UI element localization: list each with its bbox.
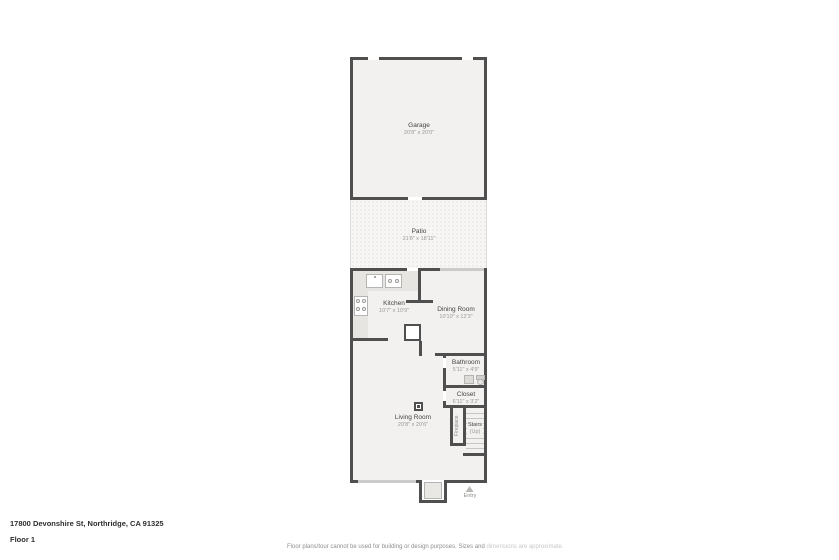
wall-alcove-bottom [419,500,447,503]
disclaimer-main: Floor plans/tour cannot be used for buil… [287,544,486,550]
vanity-icon [464,375,474,384]
closet-name: Closet [453,391,480,399]
address-text: 17800 Devonshire St, Northridge, CA 9132… [10,519,164,528]
bathroom-label: Bathroom 5'11" x 4'9" [452,359,480,374]
garage-label: Garage 20'8" x 20'0" [404,122,434,137]
entry-marker: Entry [464,486,477,499]
patio-dims: 21'8" x 18'11" [403,236,436,243]
wall-fireplace-bottom [450,443,466,446]
closet-label: Closet 6'11" x 3'2" [453,391,480,406]
fixture-marker-icon [414,402,423,411]
wall-closet-top [443,385,487,388]
fireplace-label: Fireplace [454,410,462,442]
garage-name: Garage [404,122,434,130]
stairs-direction: (Up) [468,429,482,436]
cooktop-icon [385,274,402,288]
sink-icon [366,274,383,288]
stove-icon [354,296,368,316]
window-segment [358,480,416,483]
kitchen-name: Kitchen [379,300,409,308]
floorplan-canvas: Garage 20'8" x 20'0" Patio 21'8" x 18'11… [0,0,839,560]
disclaimer-text: Floor plans/tour cannot be used for buil… [287,544,564,550]
living-dims: 20'8" x 20'6" [395,422,431,429]
wall-pantry-down [419,341,422,356]
bathroom-door-opening [443,358,446,368]
kitchen-dims: 10'7" x 10'9" [379,308,409,315]
patio-name: Patio [403,228,436,236]
wall-kitchen-bottom [350,338,388,341]
wall-fireplace-left [450,408,453,446]
wall-stairs-bottom [463,453,487,456]
garage-top-opening-right [462,57,473,60]
entry-door-icon [424,482,442,499]
closet-dims: 6'11" x 3'2" [453,399,480,406]
kitchen-label: Kitchen 10'7" x 10'9" [379,300,409,315]
bathroom-dims: 5'11" x 4'9" [452,367,480,374]
pantry-cabinet [404,324,421,341]
floor-label: Floor 1 [10,535,35,544]
dining-name: Dining Room [437,306,475,314]
garage-top-opening-left [368,57,379,60]
entry-arrow-icon [466,486,474,492]
wall-kitchen-dining [418,268,421,303]
patio-label: Patio 21'8" x 18'11" [403,228,436,243]
stairs-name: Stairs [468,421,482,429]
wall-kitchen-dining-cap [406,300,433,303]
disclaimer-fade: dimensions are approximate. [486,544,563,550]
living-label: Living Room 20'8" x 20'6" [395,414,431,429]
closet-door-opening [443,391,446,401]
stairs-label: Stairs (Up) [467,420,483,437]
garage-dims: 20'8" x 20'0" [404,130,434,137]
bathroom-name: Bathroom [452,359,480,367]
dining-dims: 10'10" x 12'3" [437,314,475,321]
dining-label: Dining Room 10'10" x 12'3" [437,306,475,321]
living-name: Living Room [395,414,431,422]
sliding-door [440,268,484,271]
entry-label: Entry [464,493,477,499]
